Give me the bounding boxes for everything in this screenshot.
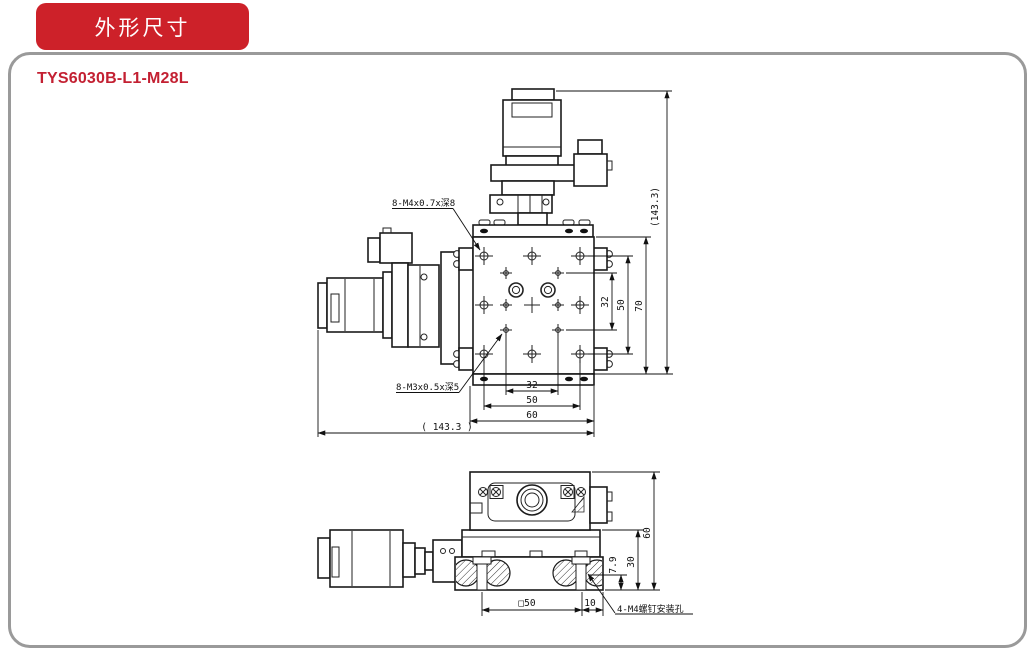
side-view-drawing: 60 30 7.9 □50 10 4-M4螺钉安装孔 <box>318 472 693 616</box>
dim-overall-height: (143.3) <box>650 187 661 227</box>
side-base <box>453 530 610 590</box>
dim-side-30: 30 <box>626 556 637 568</box>
dim-overall-width: ( 143.3 ) <box>421 422 472 433</box>
callout-m4-holes: 8-M4x0.7x深8 <box>392 198 455 209</box>
dim-bottom-60: 60 <box>526 410 538 421</box>
front-stage-plate <box>454 220 613 385</box>
section-banner: 外形尺寸 <box>36 3 249 50</box>
dim-side-7-9: 7.9 <box>608 556 619 573</box>
dim-bottom-50: 50 <box>526 395 538 406</box>
callout-mount-holes: 4-M4螺钉安装孔 <box>617 603 684 615</box>
dim-bottom-32: 32 <box>526 380 537 391</box>
front-top-motor <box>490 89 612 225</box>
dim-side-10: 10 <box>584 598 596 609</box>
dim-side-60: 60 <box>642 527 653 539</box>
dim-right-32: 32 <box>600 296 611 307</box>
front-left-motor <box>318 228 459 364</box>
catalog-page: 外形尺寸 TYS6030B-L1-M28L <box>0 0 1036 656</box>
dim-side-square50: □50 <box>518 598 535 609</box>
dimension-drawing: 32 50 70 (143.3) 32 50 60 ( 143.3 ) 8-M4… <box>0 0 1036 656</box>
product-model-title: TYS6030B-L1-M28L <box>37 70 189 88</box>
side-top-block <box>470 472 612 530</box>
side-left-motor <box>318 530 462 587</box>
dim-right-50: 50 <box>616 299 627 311</box>
dim-right-70: 70 <box>634 300 645 312</box>
front-view-drawing: 32 50 70 (143.3) 32 50 60 ( 143.3 ) 8-M4… <box>318 89 673 437</box>
callout-m3-holes: 8-M3x0.5x深5 <box>396 382 459 393</box>
section-banner-label: 外形尺寸 <box>95 12 191 42</box>
